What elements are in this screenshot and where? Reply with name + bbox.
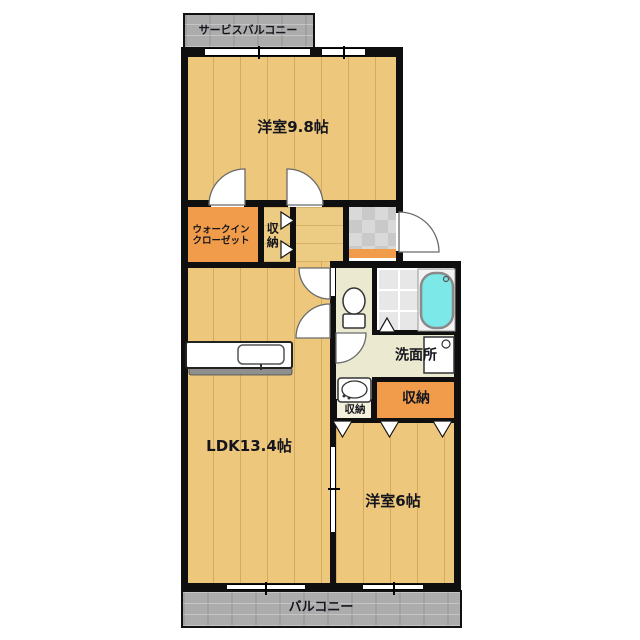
label-ldk: LDK13.4帖 [206,437,292,455]
label-bedroom-second: 洋室6帖 [365,492,420,510]
label-washroom: 洗面所 [395,348,437,365]
label-balcony: バルコニー [289,600,354,616]
label-storage-upper: 収納 [265,222,279,250]
door-arc-entrance [399,212,439,252]
door-arc-hall-upper [299,268,330,299]
door-arc-wic [209,169,245,205]
label-bedroom-main: 洋室9.8帖 [257,118,329,136]
bathtub-icon [418,269,455,331]
folding-door-icon-storage-large-1 [380,421,399,437]
folding-door-icon-storage-upper-1 [281,212,294,229]
door-arc-toilet [336,333,366,363]
floor-plan: サービスバルコニー 洋室9.8帖 ウォークイン クローゼット 収納 洗面所 収納… [0,0,640,640]
folding-door-icon-storage-large-2 [433,421,452,437]
washing-machine-icon [338,378,371,402]
door-arc-hall-lower [296,304,330,338]
fixtures-overlay [0,0,640,640]
kitchen-counter [186,342,292,375]
folding-door-icon-storage-upper-2 [281,241,294,258]
label-wic-line1: ウォークイン [192,225,249,236]
counter-base-strip [189,368,292,375]
folding-door-icon-storage-small [333,421,352,437]
label-service-balcony: サービスバルコニー [199,23,298,36]
toilet-icon [343,288,365,328]
kitchen-sink-icon [238,345,284,364]
label-walk-in-closet: ウォークイン クローゼット [192,225,249,248]
label-storage-large: 収納 [402,391,430,408]
door-arc-bedroom-main [287,169,323,205]
folding-door-icon-bathroom [379,318,395,332]
label-wic-line2: クローゼット [192,236,249,247]
label-storage-small: 収納 [345,404,366,417]
